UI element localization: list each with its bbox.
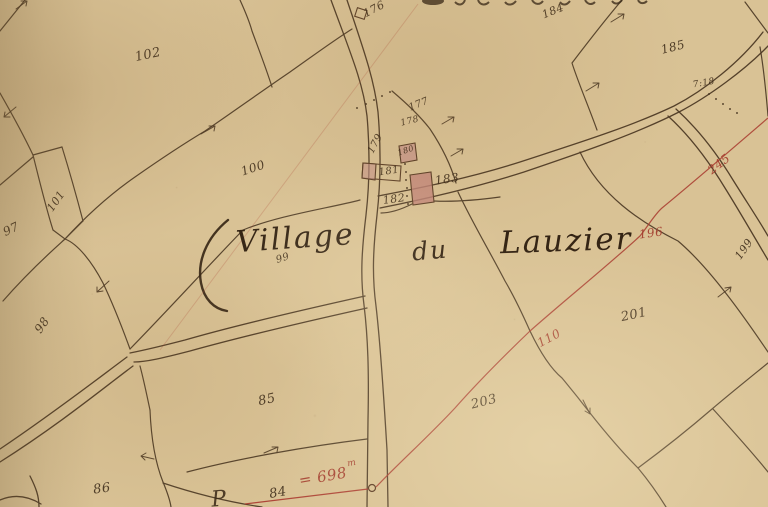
cadastral-map: 1021761841857:18100177178179180181182183… bbox=[0, 0, 768, 507]
letter-p: P bbox=[210, 488, 227, 507]
boundary-d bbox=[713, 409, 768, 472]
road-south-north-edge bbox=[130, 296, 365, 353]
parcel-182: 182 bbox=[382, 192, 406, 206]
boundary-topleft-2 bbox=[0, 93, 33, 155]
village-title-word-village: Village bbox=[235, 220, 356, 258]
road-sw-north-edge bbox=[0, 357, 127, 449]
roads bbox=[0, 0, 768, 507]
boundary-85-topleft bbox=[140, 366, 150, 410]
building-pink-3 bbox=[410, 172, 434, 205]
parcel-84: 84 bbox=[268, 485, 288, 501]
village-title-word-du: du bbox=[411, 236, 449, 264]
parcel-183: 183 bbox=[434, 171, 460, 186]
road-branch-b bbox=[668, 116, 768, 260]
boundary-left-small bbox=[0, 157, 33, 185]
parcel-86: 86 bbox=[92, 481, 111, 496]
road-south-south-edge bbox=[134, 308, 367, 362]
red-line-measure bbox=[245, 489, 368, 504]
parcel-85: 85 bbox=[257, 392, 277, 408]
boundary-102-east bbox=[240, 0, 272, 87]
boundary-102-100 bbox=[65, 29, 352, 239]
benchmark-circle bbox=[369, 485, 376, 492]
road-sw-fork-2 bbox=[0, 497, 41, 504]
road-main-west-edge bbox=[331, 0, 369, 507]
map-linework bbox=[0, 0, 768, 507]
road-sw-south-edge bbox=[0, 366, 133, 462]
title-flourish bbox=[200, 220, 228, 311]
boundary-98-top bbox=[3, 239, 65, 301]
boundary-98-right bbox=[65, 239, 130, 349]
village-title-word-lauzier: Lauzier bbox=[499, 224, 632, 260]
cutoff-text-fragments bbox=[422, 0, 647, 5]
boundary-c bbox=[638, 363, 768, 468]
road-branch-a bbox=[676, 109, 768, 236]
boundary-tr-edge bbox=[760, 47, 768, 116]
building-pink-2 bbox=[362, 163, 376, 180]
parcel-boundaries bbox=[0, 0, 768, 507]
red-measure-unit-m: m bbox=[347, 459, 357, 469]
boundary-tr-corner bbox=[745, 2, 768, 33]
red-survey-196: 196 bbox=[638, 225, 664, 240]
